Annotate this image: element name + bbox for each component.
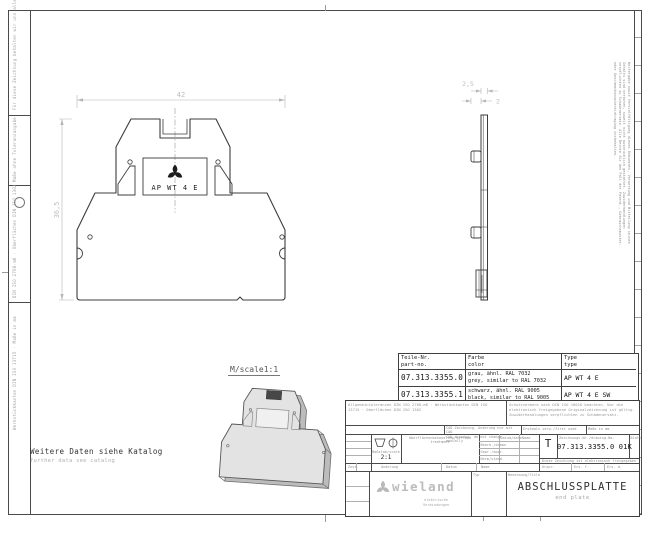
grid-line [346, 471, 639, 472]
replaces-label: Ers. d. [607, 465, 622, 469]
header-en: type [564, 362, 634, 369]
col-header-partno: Teile-Nr. part-no. [399, 354, 465, 369]
height-dim-label: 36,5 [53, 202, 61, 219]
catalog-note-de: Weitere Daten siehe Katalog [30, 447, 163, 456]
hole [88, 235, 92, 239]
latch-tab [471, 227, 481, 238]
dim-arrows [476, 90, 493, 93]
color-de: grau, ähnl. RAL 7032 [468, 371, 559, 378]
brand-tagline: elektrische Verbindungen [406, 498, 466, 507]
title-header: Benennung/Title [508, 473, 540, 477]
grid-line [346, 441, 371, 442]
joint-lines [481, 190, 488, 227]
doc-type: T [539, 437, 557, 450]
drawing-title: ABSCHLUSSPLATTE [506, 481, 639, 493]
col-header-type: Type type [561, 354, 636, 369]
color-de: schwarz, ähnl. RAL 9005 [468, 388, 559, 395]
dim-ticks [481, 88, 488, 94]
grid-line [476, 463, 477, 471]
latch-tab [471, 151, 481, 162]
fold-mark [325, 5, 326, 11]
grid-line [586, 425, 587, 434]
row-standard-label: Norm/stand. [481, 457, 505, 461]
parts-table: Teile-Nr. part-no. Farbe color Type type… [398, 353, 639, 404]
rev-name-label: Name [481, 465, 490, 469]
grid-line [346, 448, 371, 449]
sheet-label: Blatt [631, 436, 642, 440]
extension-lines [59, 119, 74, 300]
drawing-sheet: Für diese Zeichnung behalten wir uns all… [0, 0, 650, 560]
part-outline [77, 119, 285, 300]
projection-symbol-icon [373, 436, 399, 449]
thickness-dim-label: 2,5 [462, 80, 474, 88]
grid-line [471, 471, 472, 516]
dim-ticks [471, 98, 481, 104]
name-col-header: Name [522, 436, 531, 440]
drawing-subtitle: end plate [506, 495, 639, 501]
scale-value: 2:1 [372, 454, 400, 461]
rev-date-label: Datum [446, 465, 457, 469]
col-header-color: Farbe color [465, 354, 561, 369]
header-en: part-no. [401, 362, 463, 369]
type-marking: AP WT 4 E [152, 184, 199, 192]
wieland-logo-icon [373, 478, 393, 498]
depth-dim-label: 2 [496, 98, 500, 106]
margin-note: Für diese Zeichnung behalten wir uns all… [12, 0, 17, 110]
iso-top-slot [266, 390, 282, 400]
dim-note: Maße in mm [588, 427, 636, 431]
hole [216, 160, 220, 164]
drawing-no-label: Zeichnungs-Nr./drawing-No. [559, 436, 615, 440]
header-en: color [468, 362, 559, 369]
margin-note: Maße ohne Toleranzangabe [12, 117, 17, 182]
grid-line [346, 486, 369, 487]
first-used-label: Erstmals verw./first used [523, 427, 583, 431]
copyright-note: Weitergabe sowie Vervielfältigung dieses… [612, 62, 631, 247]
side-notch [280, 248, 286, 259]
hole [280, 235, 284, 239]
orig-label: Urspr. [542, 465, 555, 469]
catalog-note: Weitere Daten siehe Katalog further data… [30, 447, 163, 464]
cad-note-de: CAD-Zeichnung, Änderung nur mit CAD [446, 426, 519, 435]
iso-label-plate [256, 408, 289, 429]
tolerance-note: Allgemeintoleranzen DIN ISO 2768-mK · We… [348, 403, 498, 413]
header-de: Teile-Nr. [401, 355, 463, 362]
title-block: Allgemeintoleranzen DIN ISO 2768-mK · We… [345, 400, 640, 517]
release-note: Diese Zeichnung ist elektronisch freigeg… [539, 459, 639, 463]
catalog-note-en: further data see catalog [30, 458, 163, 464]
frame-left-outer-line [8, 10, 9, 515]
side-notch [77, 248, 83, 259]
protection-note: Schutzvermerk nach DIN ISO 16016 beachte… [509, 403, 636, 418]
fold-mark [325, 515, 326, 522]
type-cell: AP WT 4 E [561, 369, 636, 386]
row-drawn-label: Bearb./drawn [481, 443, 507, 447]
grid-line [604, 463, 605, 471]
grid-line [444, 425, 445, 434]
rev-state-label: Zust. [348, 465, 359, 469]
grid-line [571, 463, 572, 471]
drawing-number: 07.313.3355.0 01K [557, 443, 629, 451]
header-de: Type [564, 355, 634, 362]
grid-line [521, 425, 522, 434]
surface-label: Oberflächenbehandlung/surface treatment [402, 436, 478, 445]
side-view: 2,5 2 [438, 75, 513, 310]
color-en: grey, similar to RAL 7032 [468, 378, 559, 385]
fold-mark [2, 272, 8, 273]
iso-view [208, 386, 348, 498]
width-dim-label: 42 [177, 91, 185, 99]
hole [128, 160, 132, 164]
grid-line [346, 455, 371, 456]
front-view: AP WT 4 E 42 36,5 [50, 78, 320, 318]
brand-name: wieland [392, 479, 455, 494]
margin-note: Werkstückkanten DIN ISO 13715 · Maße in … [12, 316, 17, 430]
frame-left-inner-line [30, 10, 31, 515]
color-cell: grau, ähnl. RAL 7032 grey, similar to RA… [465, 369, 561, 386]
margin-divider [8, 302, 30, 303]
grid-line [441, 463, 442, 471]
margin-divider [8, 115, 30, 116]
margin-note: DIN ISO 2768-mK · Oberflächen DIN ISO 13… [12, 184, 17, 298]
scale-note: M/scale1:1 [228, 365, 280, 376]
dim-arrows [466, 100, 486, 103]
iso-front-face [219, 386, 329, 484]
grid-line [506, 401, 507, 425]
grid-line [369, 471, 370, 516]
grid-line [346, 501, 369, 502]
row-checked-label: Gepr./appr. [481, 450, 505, 454]
type-header: Typ [473, 473, 479, 477]
replaced-by-label: Ers. f. [574, 465, 589, 469]
header-de: Farbe [468, 355, 559, 362]
tagline-line2: Verbindungen [406, 503, 466, 508]
date-col-header: Datum/date [501, 436, 522, 440]
left-vent [118, 166, 135, 195]
plate-profile [481, 115, 488, 300]
rev-change-label: Änderung [381, 465, 398, 469]
grid-line [506, 471, 507, 516]
part-no-cell: 07.313.3355.0 [399, 369, 465, 386]
